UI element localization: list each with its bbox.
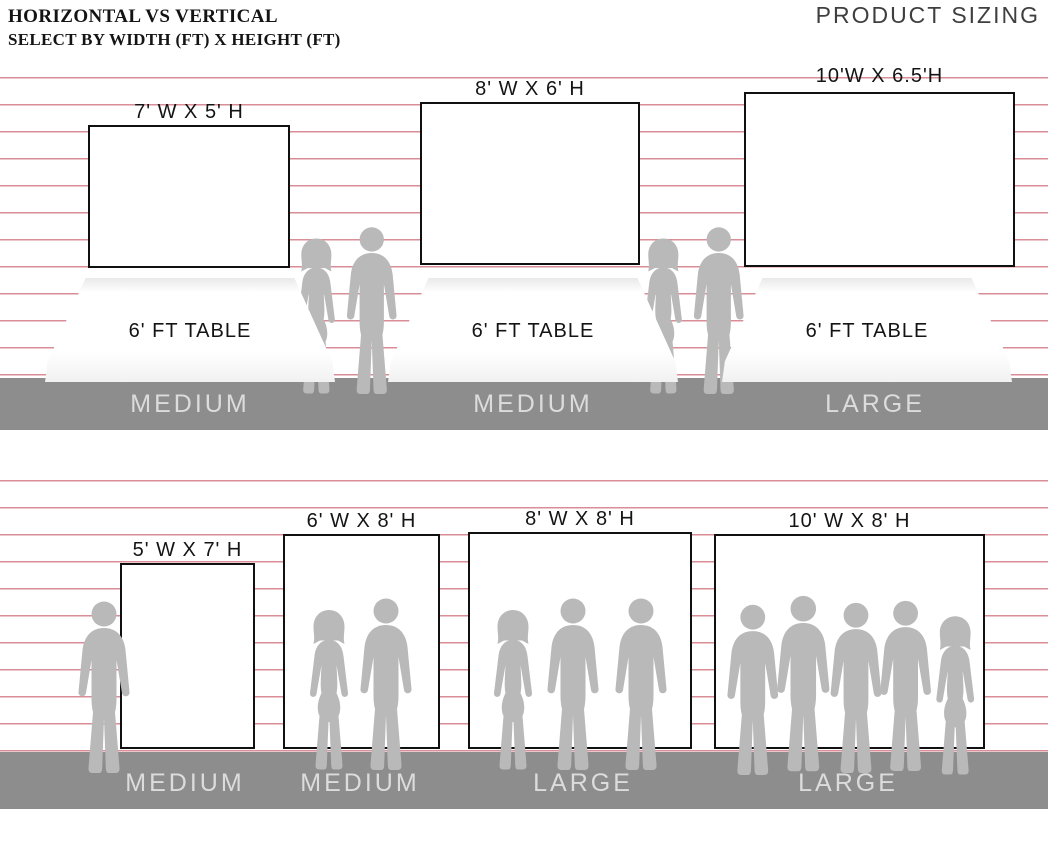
table-unit: 6' FT TABLE xyxy=(45,278,335,382)
banner-size-label: 8' W X 6' H xyxy=(420,78,640,101)
banner-horizontal-1 xyxy=(88,125,290,268)
banner-size-label: 5' W X 7' H xyxy=(120,539,255,562)
table-label: 6' FT TABLE xyxy=(45,320,335,343)
people-silhouette-pair xyxy=(301,590,417,770)
title-line-2: SELECT BY WIDTH (FT) X HEIGHT (FT) xyxy=(8,29,341,51)
table-unit: 6' FT TABLE xyxy=(388,278,678,382)
table-label: 6' FT TABLE xyxy=(388,320,678,343)
category-badge: MEDIUM xyxy=(300,769,419,798)
banner-size-label: 6' W X 8' H xyxy=(283,510,440,533)
brand-label: PRODUCT SIZING xyxy=(816,2,1040,29)
table-unit: 6' FT TABLE xyxy=(722,278,1012,382)
banner-horizontal-2 xyxy=(420,102,640,265)
title-line-1: HORIZONTAL VS VERTICAL xyxy=(8,4,341,29)
banner-vertical-1 xyxy=(120,563,255,749)
category-badge: MEDIUM xyxy=(130,390,249,419)
banner-horizontal-3 xyxy=(744,92,1015,267)
people-silhouette-trio xyxy=(485,585,675,770)
people-silhouette-group xyxy=(723,590,983,775)
table-label: 6' FT TABLE xyxy=(722,320,1012,343)
banner-size-label: 10' W X 8' H xyxy=(714,510,985,533)
category-badge: LARGE xyxy=(533,769,633,798)
category-badge: MEDIUM xyxy=(473,390,592,419)
product-sizing-infographic: HORIZONTAL VS VERTICAL SELECT BY WIDTH (… xyxy=(0,0,1048,841)
banner-size-label: 8' W X 8' H xyxy=(468,508,692,531)
banner-size-label: 10'W X 6.5'H xyxy=(744,65,1015,88)
page-title: HORIZONTAL VS VERTICAL SELECT BY WIDTH (… xyxy=(8,4,341,52)
people-silhouette-single xyxy=(74,598,134,773)
banner-size-label: 7' W X 5' H xyxy=(88,101,290,124)
category-badge: MEDIUM xyxy=(125,769,244,798)
category-badge: LARGE xyxy=(825,390,925,419)
category-badge: LARGE xyxy=(798,769,898,798)
